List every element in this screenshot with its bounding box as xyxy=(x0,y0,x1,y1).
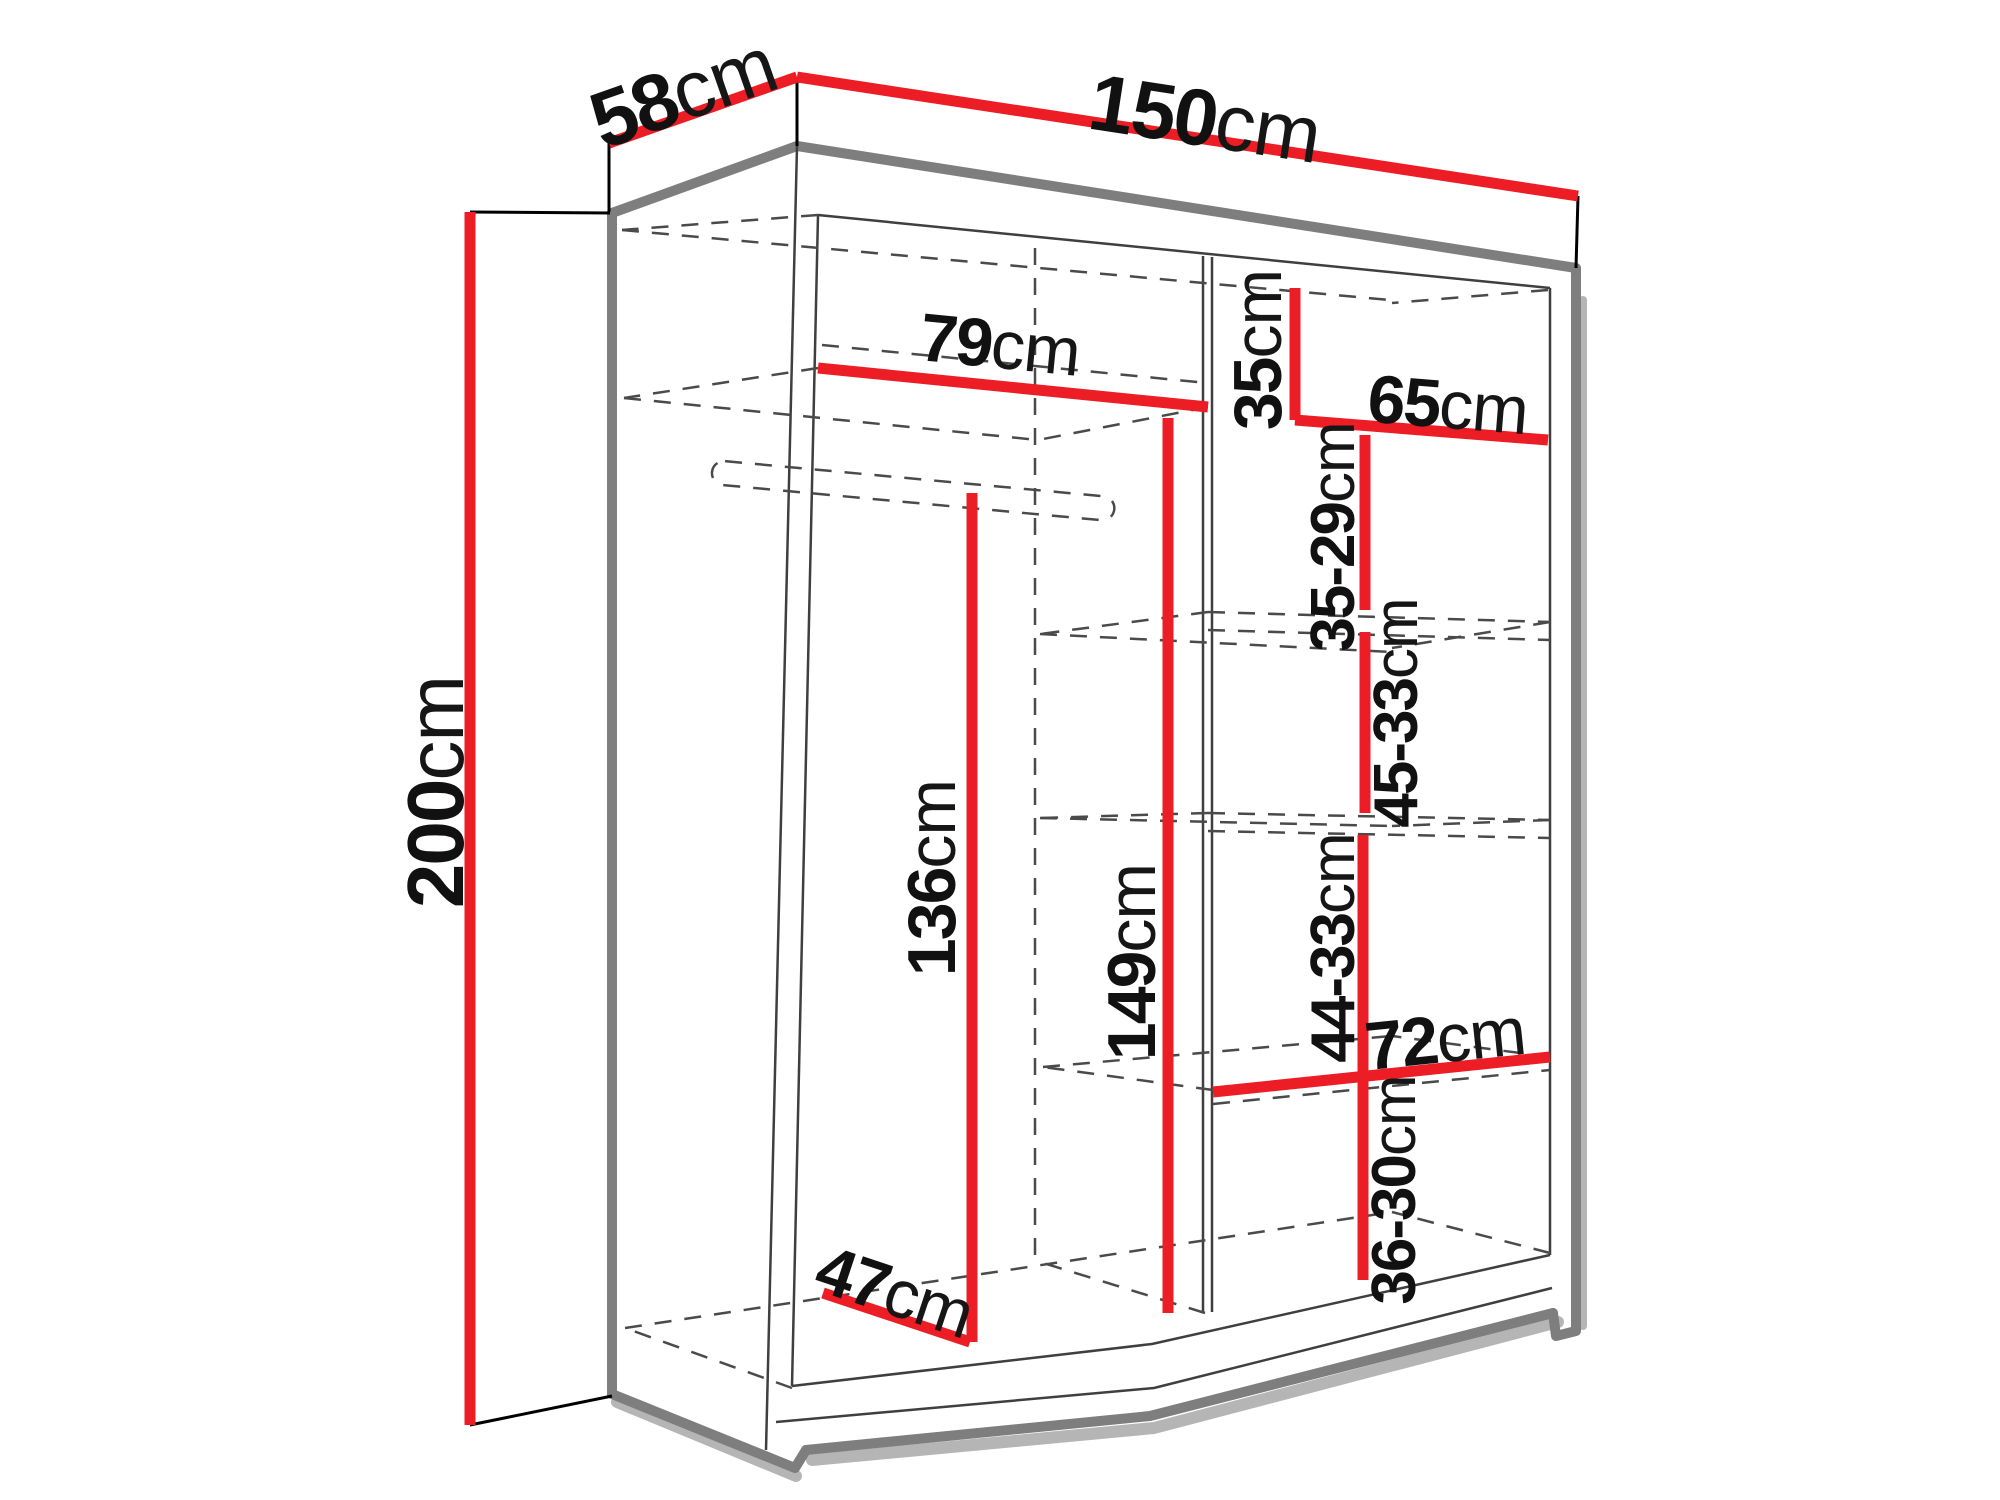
label-right-section: 65cm xyxy=(1365,361,1531,450)
diagram-canvas: 58cm 150cm 200cm 79cm 35cm 65cm 35-29cm … xyxy=(0,0,2000,1500)
wardrobe-dimension-diagram: 58cm 150cm 200cm 79cm 35cm 65cm 35-29cm … xyxy=(0,0,2000,1500)
label-hanging-height: 136cm xyxy=(894,780,970,976)
label-shelf-gap-3: 44-33cm xyxy=(1299,833,1368,1062)
label-shelf-gap-2: 45-33cm xyxy=(1362,598,1431,827)
label-lower-shelf: 72cm xyxy=(1361,993,1528,1085)
hanging-rail xyxy=(711,460,1115,521)
label-height: 200cm xyxy=(391,676,480,908)
label-shelf-gap-4: 36-30cm xyxy=(1360,1075,1429,1304)
label-interior-height: 149cm xyxy=(1094,864,1170,1060)
label-shelf-gap-1: 35-29cm xyxy=(1299,422,1368,651)
label-left-section: 79cm xyxy=(916,299,1083,391)
label-interior-depth: 47cm xyxy=(807,1231,983,1354)
label-top-shelf-height: 35cm xyxy=(1220,270,1296,430)
label-depth: 58cm xyxy=(579,19,787,166)
cabinet-outline xyxy=(612,146,1576,1468)
label-width: 150cm xyxy=(1083,57,1326,180)
